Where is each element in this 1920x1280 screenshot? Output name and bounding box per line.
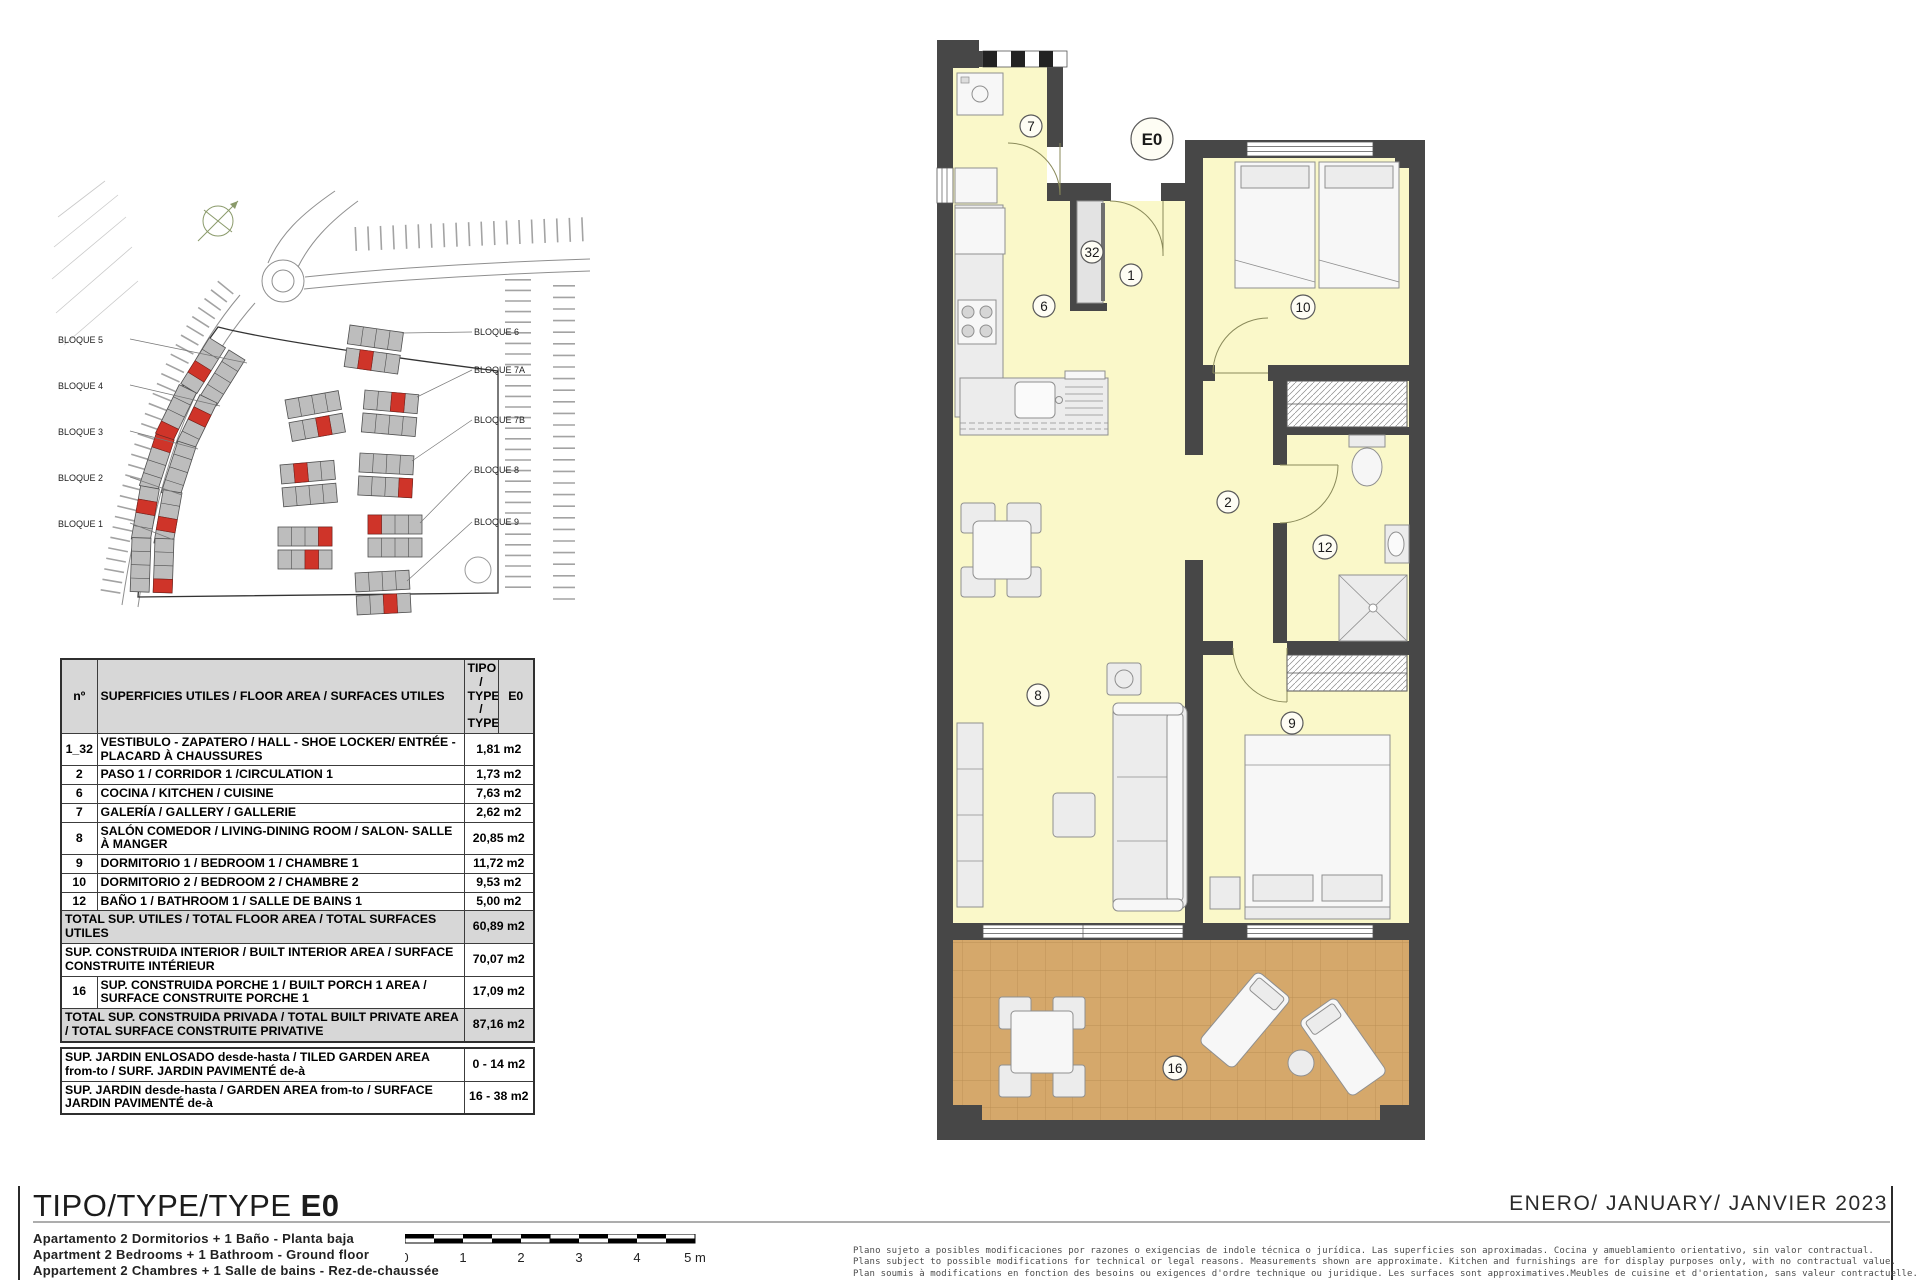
floor-plan: 7 E0 32 1 6 2 10 12 8 9 16 [935, 35, 1425, 1145]
row-value: 16 - 38 m2 [464, 1081, 534, 1114]
row-desc: PASO 1 / CORRIDOR 1 /CIRCULATION 1 [97, 766, 464, 785]
row-desc: COCINA / KITCHEN / CUISINE [97, 785, 464, 804]
bloque-label: BLOQUE 5 [58, 335, 103, 345]
coffee-table [1053, 793, 1095, 837]
row-value: 87,16 m2 [464, 1009, 534, 1042]
row-desc: DORMITORIO 2 / BEDROOM 2 / CHAMBRE 2 [97, 873, 464, 892]
bloque-label: BLOQUE 1 [58, 519, 103, 529]
pool [465, 557, 491, 583]
room-label-porch: 16 [1167, 1061, 1182, 1076]
row-desc: BAÑO 1 / BATHROOM 1 / SALLE DE BAINS 1 [97, 892, 464, 911]
room-label-hall: 1 [1127, 268, 1135, 283]
area-row: 1_32VESTIBULO - ZAPATERO / HALL - SHOE L… [61, 733, 534, 766]
row-value: 20,85 m2 [464, 822, 534, 855]
row-value: 2,62 m2 [464, 803, 534, 822]
bloque-label: BLOQUE 7A [474, 365, 525, 375]
area-row: TOTAL SUP. CONSTRUIDA PRIVADA / TOTAL BU… [61, 1009, 534, 1042]
sofa [1113, 703, 1187, 911]
area-row: 6COCINA / KITCHEN / CUISINE7,63 m2 [61, 785, 534, 804]
row-number: 1_32 [61, 733, 97, 766]
scale-tick: 1 [459, 1250, 466, 1265]
row-value: 17,09 m2 [464, 976, 534, 1009]
bloque-label: BLOQUE 6 [474, 327, 519, 337]
room-label-bedroom1: 9 [1288, 716, 1296, 731]
header-desc: SUPERFICIES UTILES / FLOOR AREA / SURFAC… [97, 659, 464, 733]
row-value: 7,63 m2 [464, 785, 534, 804]
header-type-value: E0 [498, 659, 534, 733]
wardrobe-bedroom2 [1287, 381, 1407, 427]
area-row: TOTAL SUP. UTILES / TOTAL FLOOR AREA / T… [61, 911, 534, 944]
row-number: 6 [61, 785, 97, 804]
area-table: nº SUPERFICIES UTILES / FLOOR AREA / SUR… [60, 658, 535, 1043]
garden-row: SUP. JARDIN ENLOSADO desde-hasta / TILED… [61, 1048, 534, 1081]
washing-machine [957, 73, 1003, 115]
row-desc: TOTAL SUP. UTILES / TOTAL FLOOR AREA / T… [61, 911, 464, 944]
row-value: 9,53 m2 [464, 873, 534, 892]
bloque-labels-right: BLOQUE 6BLOQUE 7ABLOQUE 7BBLOQUE 8BLOQUE… [474, 327, 525, 527]
room-label-bedroom2: 10 [1295, 300, 1310, 315]
disclaimer-line: Plan soumis à modifications en fonction … [853, 1269, 1918, 1280]
area-row: 12BAÑO 1 / BATHROOM 1 / SALLE DE BAINS 1… [61, 892, 534, 911]
date-label: ENERO/ JANUARY/ JANVIER 2023 [1509, 1192, 1888, 1216]
subtitle-line: Appartement 2 Chambres + 1 Salle de bain… [33, 1263, 439, 1279]
bloque-label: BLOQUE 3 [58, 427, 103, 437]
disclaimer: Plano sujeto a posibles modificaciones p… [853, 1246, 1918, 1280]
row-number: 12 [61, 892, 97, 911]
kitchen-sink [960, 371, 1108, 435]
scale-bar: 012345 m [405, 1234, 735, 1274]
row-desc: SUP. JARDIN ENLOSADO desde-hasta / TILED… [61, 1048, 464, 1081]
disclaimer-line: Plano sujeto a posibles modificaciones p… [853, 1246, 1918, 1257]
area-row: 16SUP. CONSTRUIDA PORCHE 1 / BUILT PORCH… [61, 976, 534, 1009]
row-value: 1,81 m2 [464, 733, 534, 766]
bloque-labels-left: BLOQUE 5BLOQUE 4BLOQUE 3BLOQUE 2BLOQUE 1 [58, 335, 103, 529]
row-desc: GALERÍA / GALLERY / GALLERIE [97, 803, 464, 822]
row-number: 8 [61, 822, 97, 855]
plan-sheet: BLOQUE 5BLOQUE 4BLOQUE 3BLOQUE 2BLOQUE 1… [0, 0, 1920, 1280]
row-desc: SUP. CONSTRUIDA INTERIOR / BUILT INTERIO… [61, 944, 464, 977]
row-number: 10 [61, 873, 97, 892]
subtitle-lines: Apartamento 2 Dormitorios + 1 Baño - Pla… [33, 1231, 439, 1279]
stove [958, 300, 996, 344]
row-value: 60,89 m2 [464, 911, 534, 944]
area-row: 9DORMITORIO 1 / BEDROOM 1 / CHAMBRE 111,… [61, 855, 534, 874]
row-value: 70,07 m2 [464, 944, 534, 977]
area-row: 8SALÓN COMEDOR / LIVING-DINING ROOM / SA… [61, 822, 534, 855]
row-value: 11,72 m2 [464, 855, 534, 874]
scale-tick: 4 [633, 1250, 640, 1265]
bathroom-sink [1385, 525, 1409, 563]
bloque-label: BLOQUE 8 [474, 465, 519, 475]
page-title: TIPO/TYPE/TYPE E0 [33, 1188, 340, 1224]
area-table-header: nº SUPERFICIES UTILES / FLOOR AREA / SUR… [61, 659, 534, 733]
scale-tick: 0 [405, 1250, 409, 1265]
row-number: 16 [61, 976, 97, 1009]
compass-icon [198, 201, 238, 241]
row-number: 2 [61, 766, 97, 785]
room-label-corridor: 2 [1224, 495, 1232, 510]
title-type: E0 [301, 1188, 340, 1223]
bloque-label: BLOQUE 9 [474, 517, 519, 527]
garden-table: SUP. JARDIN ENLOSADO desde-hasta / TILED… [60, 1047, 535, 1115]
subtitle-line: Apartment 2 Bedrooms + 1 Bathroom - Grou… [33, 1247, 439, 1263]
garden-row: SUP. JARDIN desde-hasta / GARDEN AREA fr… [61, 1081, 534, 1114]
shower [1339, 575, 1407, 641]
scale-tick: 2 [517, 1250, 524, 1265]
header-num: nº [61, 659, 97, 733]
row-desc: DORMITORIO 1 / BEDROOM 1 / CHAMBRE 1 [97, 855, 464, 874]
room-label-bathroom: 12 [1317, 540, 1332, 555]
row-desc: VESTIBULO - ZAPATERO / HALL - SHOE LOCKE… [97, 733, 464, 766]
row-desc: SUP. JARDIN desde-hasta / GARDEN AREA fr… [61, 1081, 464, 1114]
row-desc: TOTAL SUP. CONSTRUIDA PRIVADA / TOTAL BU… [61, 1009, 464, 1042]
area-row: 7GALERÍA / GALLERY / GALLERIE2,62 m2 [61, 803, 534, 822]
room-label-gallery: 7 [1027, 119, 1035, 134]
room-label-kitchen: 6 [1040, 299, 1048, 314]
row-value: 0 - 14 m2 [464, 1048, 534, 1081]
scale-tick: 3 [575, 1250, 582, 1265]
ground-hatch [52, 181, 138, 345]
title-prefix: TIPO/TYPE/TYPE [33, 1188, 301, 1223]
unit-type-label: E0 [1142, 130, 1163, 149]
disclaimer-line: Plans subject to possible modifications … [853, 1257, 1918, 1268]
bloque-label: BLOQUE 2 [58, 473, 103, 483]
room-label-shoe-locker: 32 [1084, 245, 1099, 260]
tv-bench [957, 723, 983, 907]
room-label-living: 8 [1034, 688, 1042, 703]
row-number: 7 [61, 803, 97, 822]
area-row: 2PASO 1 / CORRIDOR 1 /CIRCULATION 11,73 … [61, 766, 534, 785]
frame-line-left [18, 1186, 20, 1280]
toilet [1349, 435, 1385, 486]
row-number: 9 [61, 855, 97, 874]
row-value: 5,00 m2 [464, 892, 534, 911]
subtitle-line: Apartamento 2 Dormitorios + 1 Baño - Pla… [33, 1231, 439, 1247]
scale-bar-checker [405, 1234, 695, 1243]
side-table [1107, 663, 1141, 695]
area-row: 10DORMITORIO 2 / BEDROOM 2 / CHAMBRE 29,… [61, 873, 534, 892]
header-type-label: TIPO / TYPE / TYPE [464, 659, 498, 733]
bloque-label: BLOQUE 4 [58, 381, 103, 391]
row-desc: SUP. CONSTRUIDA PORCHE 1 / BUILT PORCH 1… [97, 976, 464, 1009]
wardrobe-bedroom1 [1287, 655, 1407, 691]
row-desc: SALÓN COMEDOR / LIVING-DINING ROOM / SAL… [97, 822, 464, 855]
site-plan: BLOQUE 5BLOQUE 4BLOQUE 3BLOQUE 2BLOQUE 1… [50, 175, 590, 625]
scale-tick: 5 m [684, 1250, 706, 1265]
bloque-label: BLOQUE 7B [474, 415, 525, 425]
row-value: 1,73 m2 [464, 766, 534, 785]
area-row: SUP. CONSTRUIDA INTERIOR / BUILT INTERIO… [61, 944, 534, 977]
scale-tick-labels: 012345 m [405, 1250, 706, 1265]
